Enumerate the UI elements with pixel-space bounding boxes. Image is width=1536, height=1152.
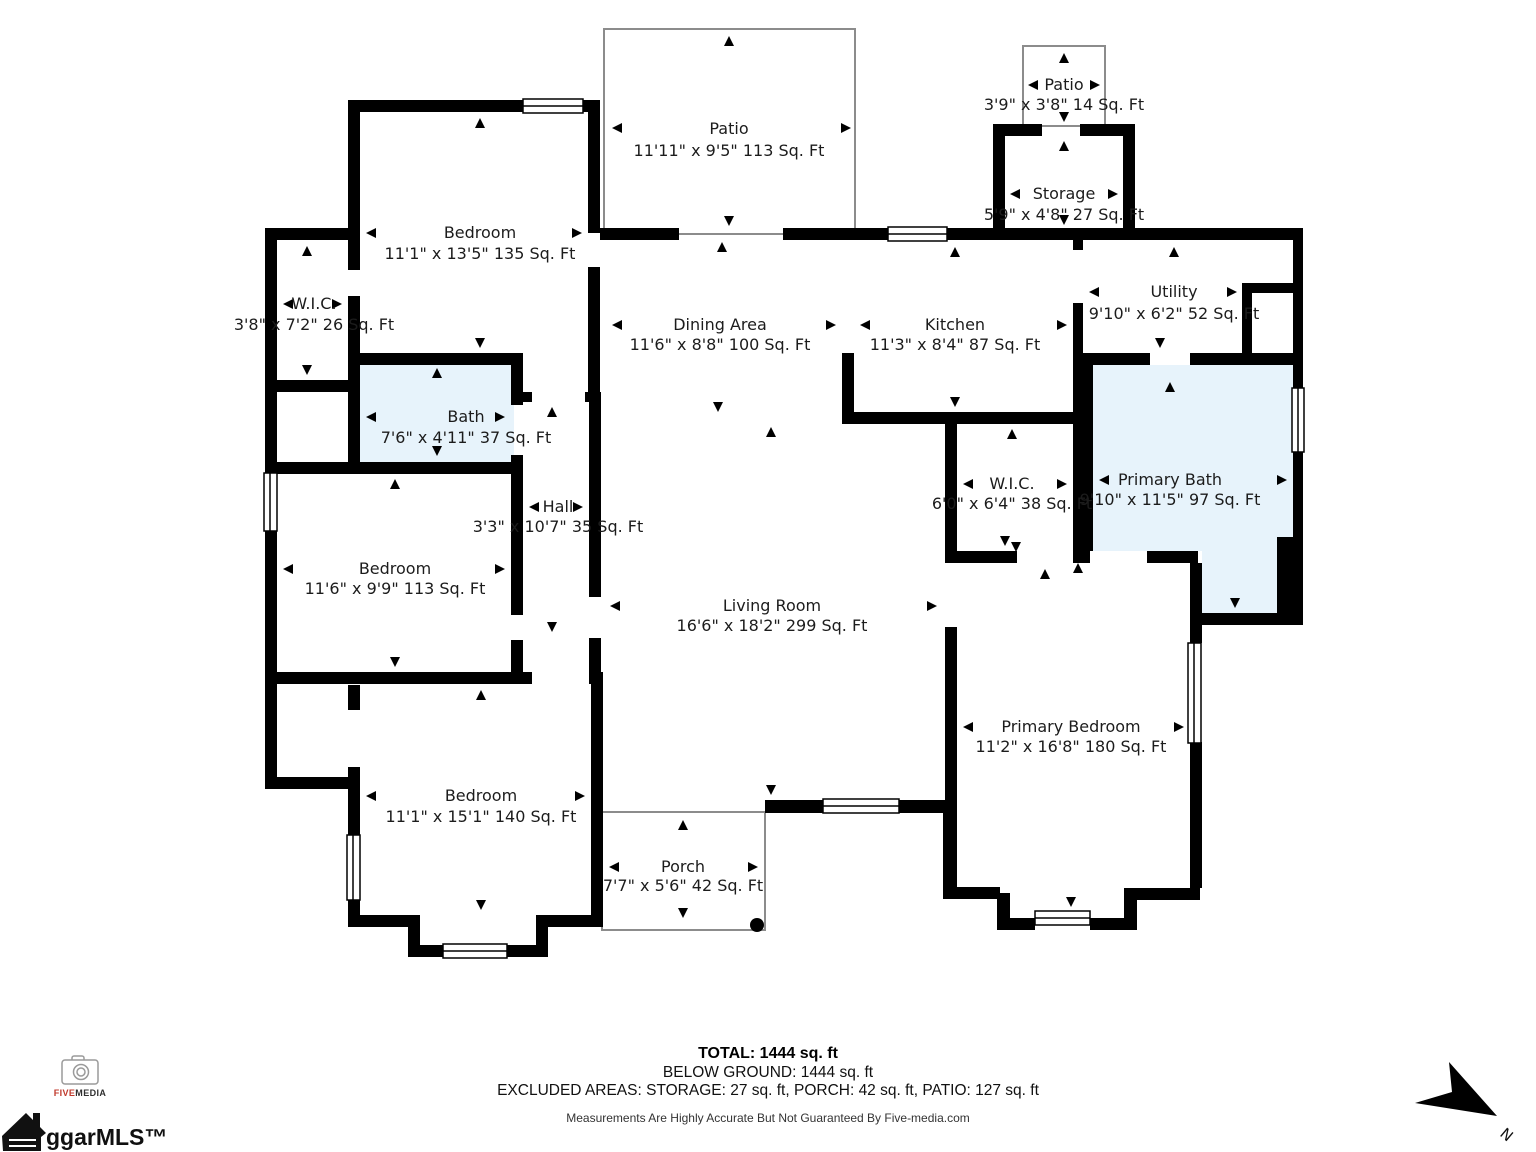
- window-icon: [1035, 911, 1090, 925]
- floorplan-page: Patio 11'11" x 9'5" 113 Sq. Ft Patio 3'9…: [0, 0, 1536, 1152]
- room-kitchen-dims: 11'3" x 8'4" 87 Sq. Ft: [870, 335, 1041, 354]
- room-dining-dims: 11'6" x 8'8" 100 Sq. Ft: [630, 335, 811, 354]
- mls-logo-text: ggarMLS™: [46, 1124, 167, 1150]
- footer-disclaimer: Measurements Are Highly Accurate But Not…: [566, 1111, 970, 1125]
- porch-post-dot: [750, 918, 764, 932]
- north-compass: N: [1415, 1062, 1517, 1145]
- room-bedroom-ml-name: Bedroom: [359, 559, 431, 578]
- brand-five: FIVE: [54, 1088, 76, 1098]
- room-porch-name: Porch: [661, 857, 705, 876]
- photographer-logo-text: FIVEMEDIA: [54, 1088, 107, 1098]
- room-patio-main-name: Patio: [709, 119, 748, 138]
- room-utility-name: Utility: [1150, 282, 1197, 301]
- north-label: N: [1496, 1124, 1516, 1145]
- brand-media: MEDIA: [75, 1088, 106, 1098]
- room-patio-small-dims: 3'9" x 3'8" 14 Sq. Ft: [984, 95, 1144, 114]
- photographer-logo: FIVEMEDIA: [54, 1056, 107, 1098]
- room-porch-dims: 7'7" x 5'6" 42 Sq. Ft: [603, 876, 763, 895]
- room-utility-dims: 9'10" x 6'2" 52 Sq. Ft: [1089, 304, 1260, 323]
- room-primary-bath-dims: 9'10" x 11'5" 97 Sq. Ft: [1080, 490, 1261, 509]
- room-bedroom-bl-dims: 11'1" x 15'1" 140 Sq. Ft: [386, 807, 577, 826]
- room-primary-bath-name: Primary Bath: [1118, 470, 1222, 489]
- window-icon: [888, 227, 947, 241]
- room-storage-name: Storage: [1033, 184, 1096, 203]
- footer-below-ground: BELOW GROUND: 1444 sq. ft: [663, 1064, 874, 1081]
- room-bedroom-tl-name: Bedroom: [444, 223, 516, 242]
- north-arrow-icon: [1415, 1062, 1497, 1116]
- footer-total: TOTAL: 1444 sq. ft: [698, 1045, 839, 1062]
- room-bedroom-tl-dims: 11'1" x 13'5" 135 Sq. Ft: [385, 244, 576, 263]
- mls-logo: ggarMLS™: [2, 1113, 167, 1151]
- room-kitchen-name: Kitchen: [925, 315, 985, 334]
- camera-icon: [62, 1056, 98, 1084]
- room-bedroom-bl-name: Bedroom: [445, 786, 517, 805]
- room-wic-left-name: W.I.C.: [291, 294, 336, 313]
- window-icon: [823, 799, 899, 813]
- room-wic-left-dims: 3'8" x 7'2" 26 Sq. Ft: [234, 315, 394, 334]
- window-icon: [347, 835, 360, 900]
- room-bath-name: Bath: [447, 407, 484, 426]
- room-bedroom-ml-dims: 11'6" x 9'9" 113 Sq. Ft: [305, 579, 486, 598]
- room-bath-dims: 7'6" x 4'11" 37 Sq. Ft: [381, 428, 552, 447]
- footer-excluded: EXCLUDED AREAS: STORAGE: 27 sq. ft, PORC…: [497, 1082, 1040, 1099]
- window-icon: [264, 473, 277, 531]
- room-living-name: Living Room: [723, 596, 821, 615]
- window-icon: [1292, 388, 1304, 452]
- window-icon: [523, 99, 583, 113]
- room-hall-dims: 3'3" x 10'7" 35 Sq. Ft: [473, 517, 644, 536]
- floorplan-drawing: Patio 11'11" x 9'5" 113 Sq. Ft Patio 3'9…: [0, 0, 1536, 1152]
- room-primary-bedroom-name: Primary Bedroom: [1001, 717, 1140, 736]
- room-living-dims: 16'6" x 18'2" 299 Sq. Ft: [677, 616, 868, 635]
- window-icon: [443, 944, 507, 958]
- room-dining-name: Dining Area: [673, 315, 767, 334]
- room-primary-bedroom-dims: 11'2" x 16'8" 180 Sq. Ft: [976, 737, 1167, 756]
- room-wic-right-name: W.I.C.: [989, 474, 1034, 493]
- window-icon: [1188, 643, 1201, 743]
- footer-summary: TOTAL: 1444 sq. ft BELOW GROUND: 1444 sq…: [497, 1045, 1040, 1125]
- room-patio-main-dims: 11'11" x 9'5" 113 Sq. Ft: [634, 141, 825, 160]
- room-wic-right-dims: 6'0" x 6'4" 38 Sq. Ft: [932, 494, 1092, 513]
- room-storage-dims: 5'9" x 4'8" 27 Sq. Ft: [984, 205, 1144, 224]
- room-hall-name: Hall: [543, 497, 574, 516]
- room-patio-small-name: Patio: [1044, 75, 1083, 94]
